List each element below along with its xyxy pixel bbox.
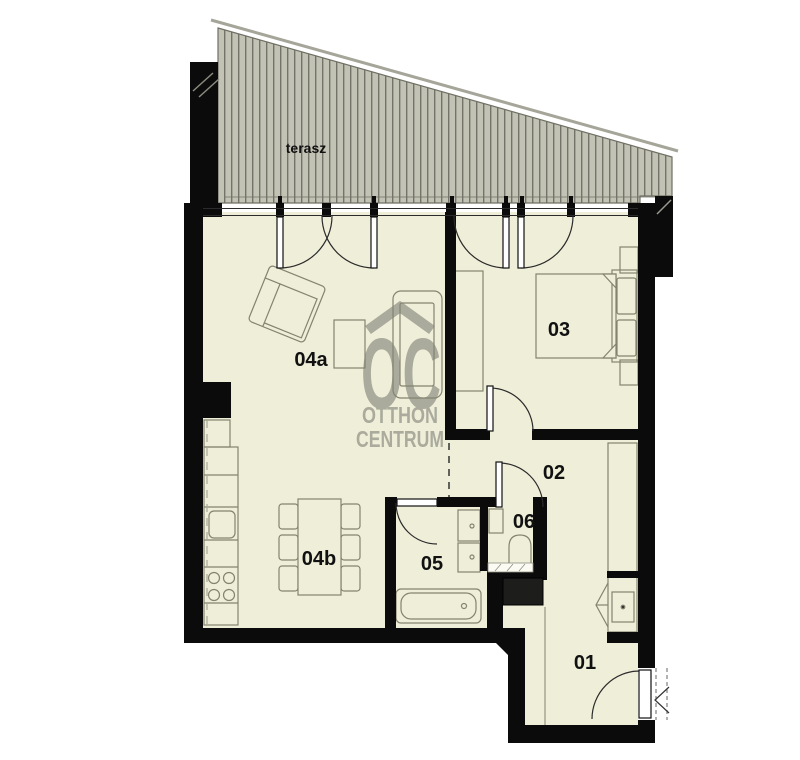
room-label-04a: 04a [294,349,328,371]
room-label-06: 06 [513,511,535,533]
wc-threshold [488,563,533,572]
wall-below-washer [607,632,638,643]
room-label-02: 02 [543,462,565,484]
wall-bath-top-a [385,497,397,507]
wall-wc-right [533,497,547,573]
floor-plan-drawing: terasz OC OTTHON CENTRUM [0,0,800,760]
wall-bedroom-bottom-right [532,429,655,440]
logo-line2: CENTRUM [356,426,444,452]
dining-set [279,499,360,595]
logo-line1: OTTHON [362,402,438,428]
wall-bath-top-b [437,497,498,507]
room-label-03: 03 [548,319,570,341]
wall-bath-left [385,497,396,643]
terrace-label: terasz [286,140,326,156]
wall-bedroom-bottom-left [445,429,490,440]
floor-areas [203,212,638,727]
room-label-01: 01 [574,652,596,674]
shaft [503,578,543,605]
wall-pillar [203,382,231,418]
wall-living-bedroom [445,212,456,440]
wall-bath-wc-divider [480,507,488,571]
terrace-deck [218,28,672,203]
room-label-04b: 04b [302,548,336,570]
wall-right-below-door [638,720,655,743]
wall-right-bump [655,196,673,277]
floor-plan-page: terasz OC OTTHON CENTRUM [0,0,800,760]
wall-bottom-kitchen [184,628,525,643]
room-label-05: 05 [421,553,443,575]
wall-left [184,203,203,643]
wall-chamfer [496,643,508,655]
dining-table [298,499,341,595]
terrace: terasz [211,20,678,203]
wall-shaft-left [487,571,503,632]
wall-bottom-entry [508,725,655,743]
wall-above-washer [607,571,638,578]
